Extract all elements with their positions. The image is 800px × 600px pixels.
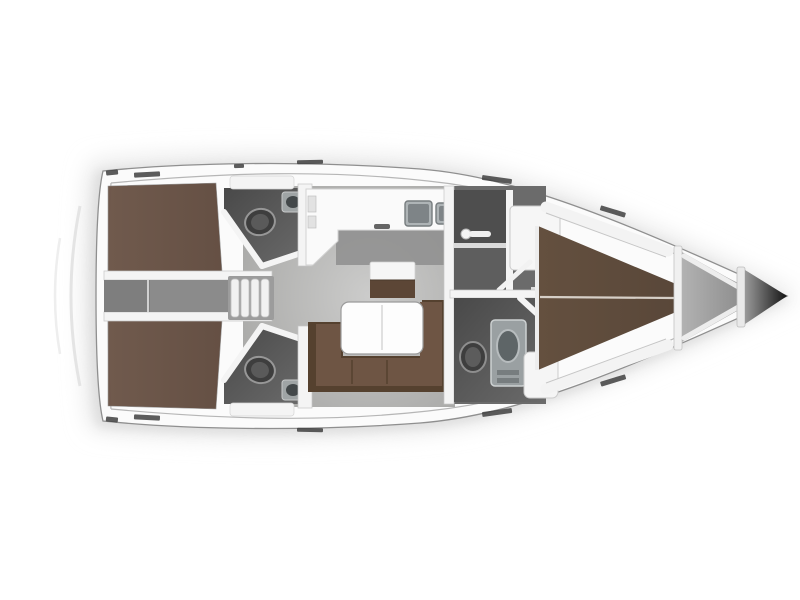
galley-floor	[336, 229, 454, 265]
swim-platform-line-outer	[55, 238, 60, 354]
step-tread	[251, 279, 259, 317]
bow	[674, 246, 787, 350]
deck-fitting	[234, 164, 244, 168]
berth-seam	[540, 297, 674, 298]
bow-bulkhead	[674, 246, 682, 350]
aft-cabin-starboard	[108, 319, 222, 409]
shower-wall	[454, 243, 508, 248]
shower-head-arm	[469, 231, 491, 237]
locker	[230, 403, 294, 416]
shower-room	[454, 190, 513, 292]
counter-fitting	[374, 224, 390, 229]
aft-cabin-port	[108, 183, 222, 273]
galley-locker	[308, 216, 316, 228]
bow-bulkhead	[737, 267, 745, 327]
floor-plan-canvas	[0, 0, 800, 600]
companionway	[104, 271, 274, 321]
deck-fitting	[297, 160, 323, 164]
sink-basin	[408, 204, 429, 223]
toilet-seat	[465, 347, 481, 367]
step-tread	[231, 279, 239, 317]
step-tread	[241, 279, 249, 317]
shower-floor	[454, 246, 508, 292]
galley-locker	[308, 196, 316, 212]
unit-drawer	[497, 370, 519, 375]
bench-seat-top	[370, 262, 415, 280]
locker	[230, 176, 294, 189]
washbasin-icon	[497, 330, 519, 362]
bow-tip	[745, 270, 787, 324]
unit-drawer	[497, 378, 519, 383]
deck-fitting	[297, 428, 323, 432]
bench-seat-front	[370, 280, 415, 298]
head-wall	[450, 290, 546, 298]
yacht-floor-plan	[0, 0, 800, 600]
swim-platform-line	[71, 206, 80, 386]
step-tread	[261, 279, 269, 317]
